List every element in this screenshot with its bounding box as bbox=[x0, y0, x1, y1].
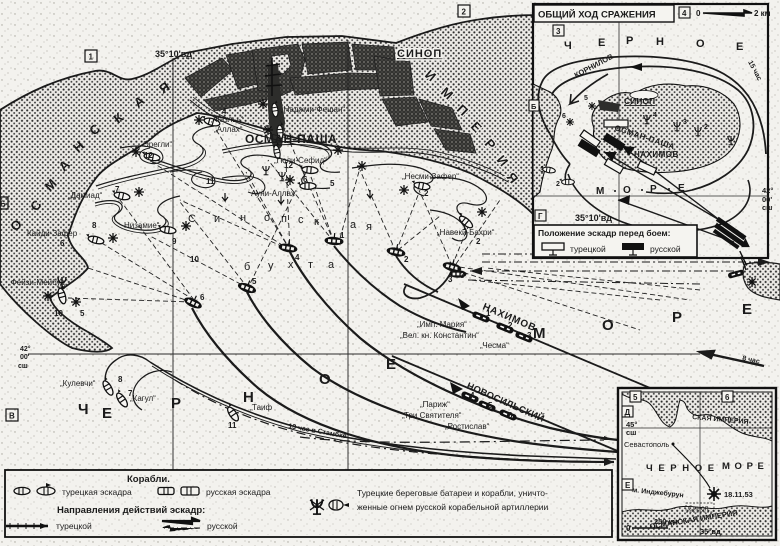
svg-text:сш: сш bbox=[762, 203, 772, 212]
svg-text:„Дамиад“: „Дамиад“ bbox=[68, 191, 103, 200]
svg-text:НАХИМОВ: НАХИМОВ bbox=[634, 150, 679, 159]
svg-text:6: 6 bbox=[725, 393, 730, 402]
svg-text:Ауни-Аллах“: Ауни-Аллах“ bbox=[251, 189, 298, 198]
svg-text:5: 5 bbox=[80, 309, 85, 318]
svg-text:9: 9 bbox=[172, 237, 177, 246]
svg-text:5: 5 bbox=[584, 95, 588, 102]
svg-text:Н: Н bbox=[656, 36, 664, 48]
svg-text:5: 5 bbox=[330, 179, 335, 188]
svg-text:„Фазлы-“: „Фазлы-“ bbox=[211, 115, 244, 124]
svg-text:Р: Р bbox=[672, 309, 682, 326]
svg-text:Р: Р bbox=[171, 395, 181, 412]
svg-text:турецкая эскадра: турецкая эскадра bbox=[62, 487, 132, 497]
svg-text:сш: сш bbox=[18, 363, 28, 370]
svg-text:и: и bbox=[214, 213, 220, 225]
svg-text:7: 7 bbox=[115, 185, 120, 194]
svg-text:1: 1 bbox=[462, 223, 467, 232]
svg-text:1: 1 bbox=[340, 231, 345, 240]
svg-text:6: 6 bbox=[562, 113, 566, 120]
svg-text:Н: Н bbox=[243, 389, 254, 406]
svg-text:2: 2 bbox=[704, 124, 708, 131]
svg-text:2 км: 2 км bbox=[754, 9, 771, 18]
svg-text:5: 5 bbox=[633, 393, 638, 402]
svg-text:у: у bbox=[268, 260, 274, 272]
svg-text:В: В bbox=[9, 412, 15, 421]
svg-text:Ч Е Р Н О Е: Ч Е Р Н О Е bbox=[646, 463, 716, 474]
svg-text:„Фейзи-Мейбуд“: „Фейзи-Мейбуд“ bbox=[8, 278, 68, 287]
svg-text:„Три Святителя“: „Три Святителя“ bbox=[402, 411, 462, 420]
svg-text:„Несми-Зафер“: „Несми-Зафер“ bbox=[402, 172, 459, 181]
svg-text:к: к bbox=[314, 216, 319, 228]
svg-text:Б: Б bbox=[531, 102, 537, 111]
svg-text:42°: 42° bbox=[20, 345, 31, 353]
svg-text:1: 1 bbox=[486, 309, 491, 318]
svg-text:Низамие“: Низамие“ bbox=[124, 221, 160, 230]
svg-text:а: а bbox=[328, 259, 335, 271]
svg-text:О: О bbox=[602, 317, 614, 334]
svg-text:т: т bbox=[308, 259, 313, 271]
svg-text:Эрегли“: Эрегли“ bbox=[143, 140, 173, 149]
svg-text:„Кулевчи“: „Кулевчи“ bbox=[60, 379, 96, 388]
svg-text:Положение эскадр перед боем:: Положение эскадр перед боем: bbox=[538, 228, 671, 238]
svg-text:7: 7 bbox=[128, 389, 133, 398]
svg-text:с: с bbox=[298, 214, 304, 226]
svg-text:сш: сш bbox=[626, 428, 636, 437]
svg-text:Б: Б bbox=[0, 200, 6, 209]
svg-text:18.11.53: 18.11.53 bbox=[724, 490, 753, 499]
svg-text:„Вел. кн. Константин“: „Вел. кн. Константин“ bbox=[400, 331, 479, 340]
svg-text:М: М bbox=[596, 186, 604, 197]
svg-text:Корабли.: Корабли. bbox=[127, 474, 170, 485]
svg-text:11: 11 bbox=[206, 177, 215, 186]
svg-text:3: 3 bbox=[540, 167, 544, 174]
svg-text:Е: Е bbox=[102, 405, 112, 422]
svg-text:3: 3 bbox=[448, 275, 453, 284]
svg-text:6: 6 bbox=[303, 175, 308, 184]
svg-text:Г: Г bbox=[538, 212, 543, 221]
svg-text:Синоп: Синоп bbox=[688, 506, 709, 513]
svg-text:4: 4 bbox=[295, 253, 300, 262]
svg-text:Ч: Ч bbox=[78, 401, 89, 418]
svg-text:СИНОП: СИНОП bbox=[624, 96, 655, 106]
svg-text:„Ростислав“: „Ростислав“ bbox=[445, 422, 490, 431]
svg-text:„Кагул“: „Кагул“ bbox=[130, 394, 156, 403]
svg-text:2: 2 bbox=[424, 189, 429, 198]
svg-text:00': 00' bbox=[20, 354, 30, 361]
svg-text:3: 3 bbox=[683, 119, 687, 126]
svg-text:„Чесма“: „Чесма“ bbox=[480, 341, 509, 350]
svg-text:3: 3 bbox=[460, 271, 465, 280]
svg-text:12: 12 bbox=[144, 151, 153, 160]
svg-text:11: 11 bbox=[228, 421, 237, 430]
svg-text:Е: Е bbox=[386, 356, 396, 373]
svg-text:2: 2 bbox=[462, 8, 467, 17]
svg-text:п: п bbox=[281, 213, 287, 225]
svg-text:С: С bbox=[188, 213, 196, 225]
svg-text:8: 8 bbox=[118, 375, 123, 384]
svg-text:О: О bbox=[319, 371, 331, 388]
svg-text:3: 3 bbox=[556, 27, 561, 36]
svg-text:а: а bbox=[350, 219, 357, 231]
svg-text:Д: Д bbox=[625, 408, 631, 417]
svg-text:5: 5 bbox=[252, 277, 257, 286]
svg-text:русской: русской bbox=[650, 244, 681, 254]
svg-text:42°: 42° bbox=[762, 186, 773, 195]
svg-text:СИНОП: СИНОП bbox=[397, 48, 442, 60]
svg-text:„Аллах“: „Аллах“ bbox=[214, 125, 243, 134]
svg-text:2: 2 bbox=[556, 181, 560, 188]
svg-text:Ч: Ч bbox=[564, 40, 572, 52]
svg-text:10: 10 bbox=[54, 309, 63, 318]
svg-text:35°10'вд: 35°10'вд bbox=[575, 213, 612, 223]
svg-text:турецкой: турецкой bbox=[56, 521, 92, 531]
svg-text:35°вд: 35°вд bbox=[700, 527, 721, 536]
svg-text:Е: Е bbox=[736, 41, 743, 53]
svg-text:ОБЩИЙ ХОД СРАЖЕНИЯ: ОБЩИЙ ХОД СРАЖЕНИЯ bbox=[538, 9, 656, 21]
svg-text:4: 4 bbox=[682, 9, 687, 18]
svg-text:Турецкие береговые батареи и к: Турецкие береговые батареи и корабли, ун… bbox=[357, 488, 548, 498]
svg-text:ОСМАН-ПАША: ОСМАН-ПАША bbox=[245, 132, 337, 146]
svg-text:н: н bbox=[240, 212, 246, 224]
svg-text:0: 0 bbox=[696, 9, 701, 18]
svg-text:1: 1 bbox=[89, 53, 94, 62]
svg-text:250 км: 250 км bbox=[654, 517, 678, 526]
svg-text:о: о bbox=[264, 212, 270, 224]
svg-text:6: 6 bbox=[60, 239, 65, 248]
svg-text:О: О bbox=[623, 185, 631, 196]
svg-text:„Гюли-Сефид“: „Гюли-Сефид“ bbox=[274, 156, 327, 165]
svg-text:12: 12 bbox=[284, 161, 293, 170]
svg-text:Е: Е bbox=[742, 301, 752, 318]
svg-text:М О Р Е: М О Р Е bbox=[722, 461, 765, 472]
svg-text:я: я bbox=[366, 221, 372, 233]
svg-text:10: 10 bbox=[190, 255, 199, 264]
svg-text:8: 8 bbox=[92, 221, 97, 230]
svg-text:О: О bbox=[696, 38, 705, 50]
svg-text:русской: русской bbox=[207, 521, 238, 531]
svg-text:х: х bbox=[288, 259, 294, 271]
svg-text:6: 6 bbox=[508, 411, 513, 420]
svg-text:Е: Е bbox=[598, 37, 605, 49]
svg-text:5: 5 bbox=[488, 401, 493, 410]
svg-text:2: 2 bbox=[476, 237, 481, 246]
svg-text:Р: Р bbox=[626, 35, 633, 47]
svg-text:„Имп. Мария“: „Имп. Мария“ bbox=[417, 320, 467, 329]
svg-text:Кайди-Зафер: Кайди-Зафер bbox=[27, 229, 78, 238]
svg-text:турецкой: турецкой bbox=[570, 244, 606, 254]
svg-text:„Париж“: „Париж“ bbox=[420, 400, 450, 409]
svg-text:„Наджми-Фешан“: „Наджми-Фешан“ bbox=[281, 105, 345, 114]
svg-text:б: б bbox=[244, 261, 250, 273]
svg-text:4: 4 bbox=[653, 112, 657, 119]
svg-text:2: 2 bbox=[508, 321, 513, 330]
svg-text:женные огнем русской корабельн: женные огнем русской корабельной артилле… bbox=[357, 502, 549, 512]
svg-text:4: 4 bbox=[222, 107, 227, 116]
svg-text:35°10'вд: 35°10'вд bbox=[155, 49, 192, 59]
svg-text:4: 4 bbox=[470, 391, 475, 400]
svg-text:0: 0 bbox=[626, 524, 631, 533]
svg-text:Севастополь: Севастополь bbox=[624, 440, 669, 449]
svg-text:3: 3 bbox=[527, 331, 532, 340]
svg-text:русская эскадра: русская эскадра bbox=[206, 487, 271, 497]
svg-text:6: 6 bbox=[200, 293, 205, 302]
svg-text:Е: Е bbox=[625, 481, 631, 490]
svg-text:2: 2 bbox=[404, 255, 409, 264]
svg-text:Направления действий эскадр:: Направления действий эскадр: bbox=[57, 505, 205, 516]
